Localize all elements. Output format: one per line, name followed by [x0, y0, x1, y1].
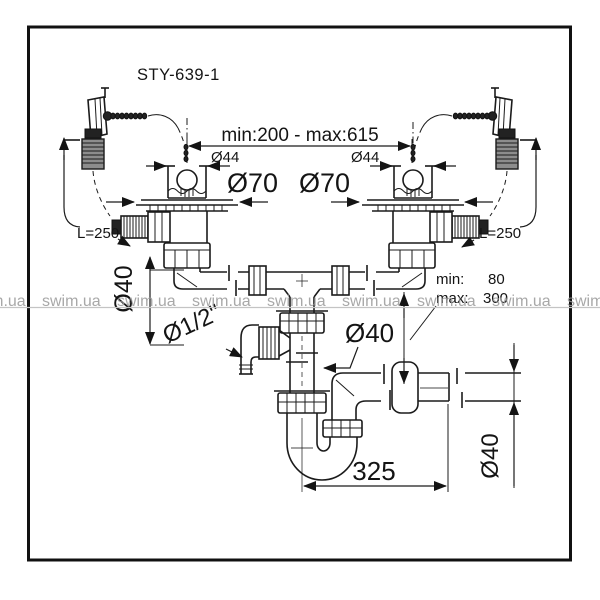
overflow-inlet-thread [121, 216, 148, 238]
overflow-inlet-thread [452, 216, 479, 238]
right-drain-diameter-label: Ø44 [351, 149, 379, 166]
trap-offset-label: 325 [352, 456, 395, 486]
wall-fitting [392, 362, 418, 413]
watermark-text: swim.ua [567, 293, 600, 310]
watermark-text: swim.ua [267, 293, 326, 310]
outlet-min-value: 80 [488, 271, 505, 288]
branch-knurled-nut [259, 327, 279, 359]
drain-ball [177, 170, 197, 190]
watermark-text: swim.ua [342, 293, 401, 310]
pipe-union-sleeve [249, 266, 266, 295]
outlet-min-label: min: [436, 271, 464, 288]
left-flange-diameter-label: Ø70 [227, 168, 278, 198]
outlet-pipe-diameter-label: Ø40 [477, 433, 504, 478]
overflow-connector [85, 129, 101, 138]
overflow-connector [499, 129, 515, 138]
watermark-text: swim.ua [492, 293, 551, 310]
drain-ball [403, 170, 423, 190]
overflow-inlet-nut [148, 212, 170, 242]
right-flange-diameter-label: Ø70 [299, 168, 350, 198]
right-overflow-length-label: L=250 [479, 225, 521, 242]
technical-drawing-page: STY-639-1 min:200 - max:615 Ø44 Ø44 Ø70 … [0, 0, 600, 600]
trap-inlet-nut [278, 393, 326, 413]
watermark-text: swim.ua [417, 293, 476, 310]
drop-pipe-diameter-label: Ø40 [345, 318, 394, 348]
watermark-text: swim.ua [192, 293, 251, 310]
watermark-text: swim.ua [117, 293, 176, 310]
left-drain-diameter-label: Ø44 [211, 149, 239, 166]
span-dimension-label: min:200 - max:615 [221, 125, 378, 146]
watermark-row: swim.ua swim.ua swim.ua swim.ua swim.ua … [0, 293, 600, 310]
pipe-union-sleeve [332, 266, 349, 295]
overflow-inlet-nut [430, 212, 452, 242]
part-number: STY-639-1 [137, 66, 220, 84]
watermark-text: swim.ua [42, 293, 101, 310]
double-sink-siphon-drawing: STY-639-1 min:200 - max:615 Ø44 Ø44 Ø70 … [0, 0, 600, 600]
watermark-text: swim.ua [0, 293, 26, 310]
tee-nut [280, 313, 324, 333]
left-overflow-length-label: L=250 [77, 225, 119, 242]
